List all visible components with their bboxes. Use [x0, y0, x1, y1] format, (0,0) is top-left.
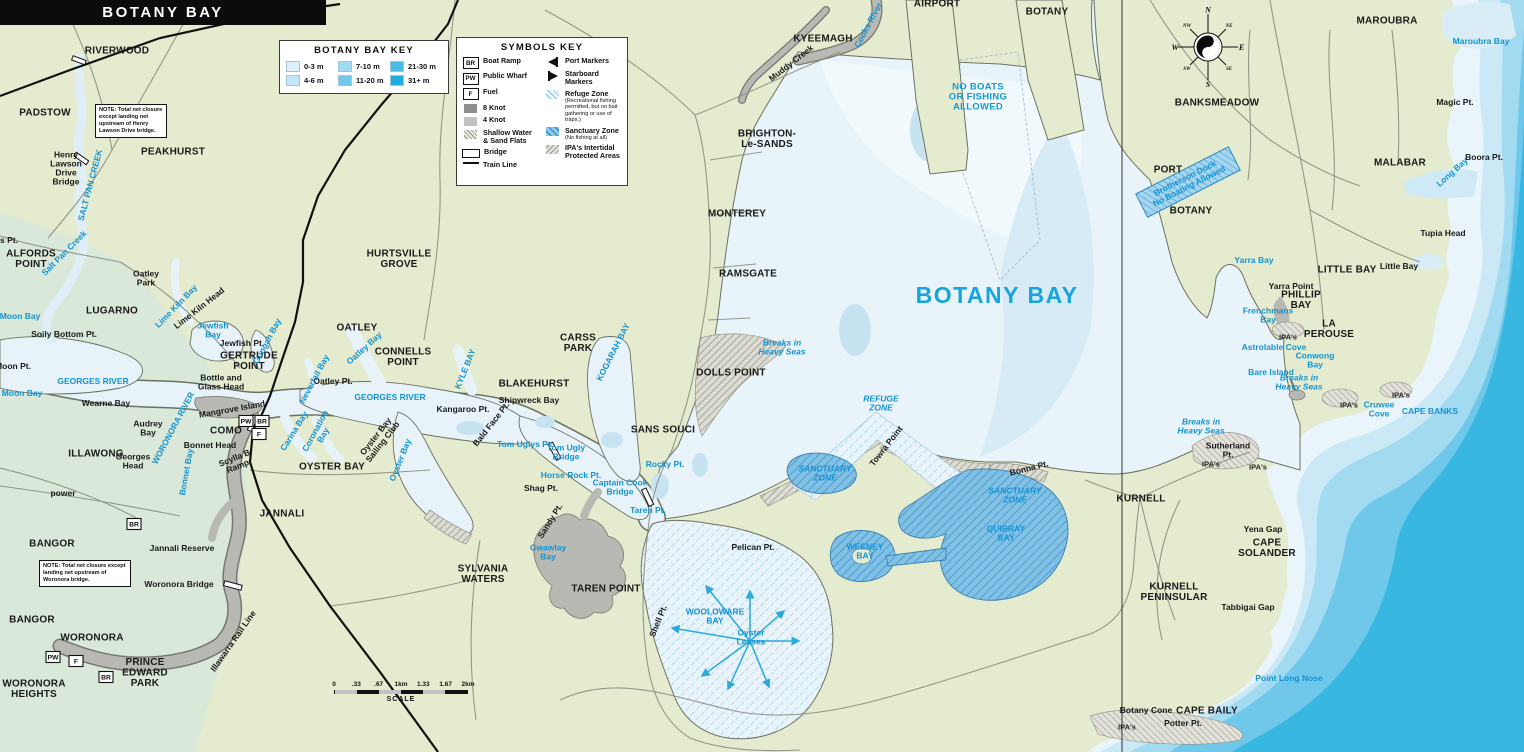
map-label: Taren Pt. — [630, 505, 666, 515]
map-label: BRIGHTON-Le-SANDS — [738, 128, 796, 150]
map-canvas: RIVERWOODPADSTOWPEAKHURSTHURTSVILLEGROVE… — [0, 0, 1524, 752]
scale-segment — [423, 690, 445, 694]
scale-tick: .67 — [374, 681, 383, 688]
map-label: BOTANY — [1026, 7, 1069, 18]
scale-tick-labels: 0.33.671km1.331.672km — [334, 681, 468, 690]
facility-marker-br: BR — [99, 672, 113, 683]
map-label: LUGARNO — [86, 306, 138, 317]
f-box-icon: F — [463, 88, 479, 100]
map-label: AIRPORT — [914, 0, 960, 10]
symbols-key-entry: 8 Knot — [462, 104, 540, 114]
map-label: Point Long Nose — [1255, 673, 1323, 683]
map-label: Breaks inHeavy Seas — [1177, 417, 1225, 436]
refuge-zone-hatch-icon — [546, 90, 559, 99]
map-label: Potter Pt. — [1164, 718, 1202, 728]
symbols-key-label: Public Wharf — [483, 72, 527, 80]
scale-bar: 0.33.671km1.331.672km SCALE — [334, 681, 468, 703]
facility-marker-f: F — [252, 429, 266, 440]
compass-n: N — [1204, 6, 1212, 15]
map-label: CARSSPARK — [560, 332, 596, 354]
map-label: BOTANY — [1170, 206, 1213, 217]
map-label: IPA's — [1202, 460, 1220, 469]
map-label: Shipwreck Bay — [499, 395, 560, 405]
svg-text:F: F — [257, 432, 261, 439]
svg-text:BR: BR — [257, 419, 267, 426]
map-label: TAREN POINT — [571, 584, 640, 595]
symbols-key-label: Refuge Zone — [565, 90, 622, 98]
map-label: Kangaroo Pt. — [437, 404, 490, 414]
map-label: OATLEY — [336, 323, 377, 334]
symbols-key-entry: Shallow Water & Sand Flats — [462, 129, 540, 145]
depth-key-entry: 31+ m — [390, 73, 442, 87]
scale-segment — [445, 690, 467, 694]
map-label: power — [50, 488, 76, 498]
map-label: COMO — [210, 426, 242, 437]
depth-label: 31+ m — [408, 76, 429, 85]
compass-se: SE — [1226, 67, 1233, 72]
net-closure-note-woronora: NOTE: Total net closure except landing n… — [39, 560, 131, 587]
compass-rose-icon: N S E W NW NE SW SE — [1172, 6, 1244, 88]
depth-swatch — [286, 61, 300, 72]
scale-caption: SCALE — [334, 696, 468, 703]
symbols-key-entry: Bridge — [462, 148, 540, 158]
symbols-key-left-column: BRBoat RampPWPublic WharfFFuel8 Knot4 Kn… — [462, 55, 540, 171]
map-label: Wearne Bay — [82, 398, 131, 408]
net-closure-note-salt-pan: NOTE: Total net closure except landing n… — [95, 104, 167, 138]
compass-nw: NW — [1182, 24, 1192, 29]
symbols-key-label: Train Line — [483, 161, 517, 169]
map-label: Boora Pt. — [1465, 152, 1503, 162]
svg-text:PW: PW — [241, 419, 253, 426]
scale-segment — [401, 690, 423, 694]
depth-swatch — [338, 75, 352, 86]
depth-label: 4-6 m — [304, 76, 324, 85]
scale-tick: 1.67 — [439, 681, 452, 688]
map-label: NO BOATSOR FISHINGALLOWED — [949, 81, 1007, 112]
map-label: s Pt. — [0, 235, 18, 245]
depth-label: 21-30 m — [408, 62, 436, 71]
map-label: WORONORAHEIGHTS — [2, 678, 65, 700]
shallow-water-hatch-icon — [464, 130, 477, 139]
svg-text:PW: PW — [48, 655, 60, 662]
map-label: IPA's — [1249, 463, 1267, 472]
map-label: Yena Gap — [1244, 524, 1283, 534]
map-label: IPA's — [1279, 333, 1297, 342]
depth-label: 11-20 m — [356, 76, 384, 85]
svg-text:F: F — [74, 659, 78, 666]
depth-key-entry: 11-20 m — [338, 73, 390, 87]
symbols-key-subtext: (No fishing at all) — [565, 135, 619, 141]
scale-segments — [334, 690, 468, 694]
map-label: Breaks inHeavy Seas — [1275, 373, 1323, 392]
compass-s: S — [1206, 80, 1211, 88]
map-label: KYEEMAGH — [793, 34, 852, 45]
symbols-key-entry: FFuel — [462, 88, 540, 101]
map-label: SANS SOUCI — [631, 425, 695, 436]
depth-label: 0-3 m — [304, 62, 324, 71]
symbols-key-entry: BRBoat Ramp — [462, 57, 540, 70]
depth-key-entry: 21-30 m — [390, 59, 442, 73]
svg-text:BR: BR — [129, 522, 139, 529]
map-label: Botany Cone — [1120, 705, 1173, 715]
scale-segment — [357, 690, 379, 694]
symbols-key-entry: Starboard Markers — [544, 70, 622, 86]
scale-segment — [379, 690, 401, 694]
depth-swatch — [286, 75, 300, 86]
map-label: BOTANY BAY — [916, 282, 1079, 308]
symbols-key-label: 8 Knot — [483, 104, 505, 112]
map-label: BANKSMEADOW — [1175, 98, 1260, 109]
scale-tick: .33 — [352, 681, 361, 688]
depth-key-legend: BOTANY BAY KEY 0-3 m4-6 m7-10 m11-20 m21… — [279, 40, 449, 94]
symbols-key-right-column: Port MarkersStarboard MarkersRefuge Zone… — [544, 55, 622, 171]
map-label: Woronora Bridge — [144, 579, 214, 589]
symbols-key-label: Sanctuary Zone — [565, 127, 619, 135]
map-label: Rocky Pt. — [646, 459, 685, 469]
map-label: MONTEREY — [708, 209, 766, 220]
scale-tick: 2km — [461, 681, 474, 688]
depth-swatch — [390, 61, 404, 72]
map-label: Little Bay — [1380, 261, 1419, 271]
symbols-key-label: 4 Knot — [483, 116, 505, 124]
compass-sw: SW — [1183, 67, 1191, 72]
symbols-key-entry: 4 Knot — [462, 116, 540, 126]
symbols-key-label: Fuel — [483, 88, 498, 96]
symbols-key-entry: Train Line — [462, 161, 540, 169]
map-label: Magic Pt. — [1436, 97, 1473, 107]
sanctuary-zone-hatch-icon — [546, 127, 559, 136]
map-label: MALABAR — [1374, 158, 1427, 169]
map-label: IPA's — [1392, 391, 1410, 400]
scale-tick: 0 — [332, 681, 336, 688]
depth-key-title: BOTANY BAY KEY — [280, 45, 448, 56]
compass-e: E — [1238, 43, 1244, 52]
map-label: BANGOR — [29, 539, 75, 550]
map-label: KURNELL — [1116, 494, 1165, 505]
map-label: OYSTER BAY — [299, 462, 365, 473]
map-label: Moon Bay — [0, 311, 41, 321]
depth-label: 7-10 m — [356, 62, 380, 71]
compass-w: W — [1172, 43, 1179, 52]
br-box-icon: BR — [463, 57, 479, 69]
symbols-key-entry: IPA's Intertidal Protected Areas — [544, 144, 622, 160]
map-label: RAMSGATE — [719, 269, 777, 280]
symbols-key-entry: Refuge Zone(Recreational fishing permitt… — [544, 90, 622, 124]
ipa-hatch-icon — [546, 145, 559, 154]
map-label: DOLLS POINT — [696, 368, 765, 379]
depth-key-entry: 7-10 m — [338, 59, 390, 73]
depth-key-entries: 0-3 m4-6 m7-10 m11-20 m21-30 m31+ m — [280, 58, 448, 88]
compass-ne: NE — [1225, 24, 1234, 29]
symbols-key-entry: PWPublic Wharf — [462, 72, 540, 85]
map-label: PADSTOW — [19, 108, 71, 119]
map-label: Yarra Point — [1269, 281, 1314, 291]
port-marker-icon — [548, 57, 558, 67]
map-label: KURNELLPENINSULAR — [1140, 581, 1208, 603]
map-label: Pelican Pt. — [732, 542, 775, 552]
map-label: WORONORA — [60, 633, 123, 644]
bridge-icon — [462, 149, 480, 158]
train-line-icon — [463, 162, 479, 165]
knot-swatch-icon — [464, 104, 477, 113]
symbols-key-label: Port Markers — [565, 57, 609, 65]
map-label: Jannali Reserve — [150, 543, 215, 553]
map-label: HenryLawsonDriveBridge — [50, 150, 82, 187]
map-label: CAPE BAILY — [1176, 706, 1238, 717]
map-label: Tabbigai Gap — [1221, 602, 1274, 612]
depth-swatch — [338, 61, 352, 72]
pw-box-icon: PW — [463, 73, 479, 85]
map-label: IPA's — [1340, 401, 1358, 410]
depth-swatch — [390, 75, 404, 86]
botany-bay-map-page: RIVERWOODPADSTOWPEAKHURSTHURTSVILLEGROVE… — [0, 0, 1524, 752]
map-label: Maroubra Bay — [1453, 36, 1510, 46]
map-label: SYLVANIAWATERS — [458, 563, 509, 585]
map-title: BOTANY BAY — [102, 4, 223, 21]
map-label: MAROUBRA — [1356, 16, 1417, 27]
map-label: Soily Bottom Pt. — [31, 329, 97, 339]
map-label: GEORGES RIVER — [57, 376, 128, 386]
symbols-key-entry: Port Markers — [544, 57, 622, 68]
svg-text:BR: BR — [101, 675, 111, 682]
depth-key-entry: 4-6 m — [286, 73, 338, 87]
symbols-key-label: Starboard Markers — [565, 70, 622, 86]
map-label: RIVERWOOD — [85, 46, 149, 57]
map-label: LITTLE BAY — [1318, 265, 1377, 276]
facility-marker-f: F — [69, 656, 83, 667]
scale-tick: 1.33 — [417, 681, 430, 688]
map-label: PORT — [1154, 165, 1183, 176]
facility-marker-pw: PW — [239, 416, 253, 427]
map-label: Bonnet Head — [184, 440, 236, 450]
symbols-key-label: Bridge — [484, 148, 507, 156]
map-label: Yarra Bay — [1234, 255, 1273, 265]
starboard-marker-icon — [548, 71, 558, 81]
depth-key-entry: 0-3 m — [286, 59, 338, 73]
symbols-key-subtext: (Recreational fishing permitted, but no … — [565, 98, 622, 124]
facility-marker-br: BR — [255, 416, 269, 427]
map-label: Tupia Head — [1420, 228, 1465, 238]
map-label: Moon Pt. — [0, 361, 31, 371]
map-title-banner: BOTANY BAY — [0, 0, 326, 25]
symbols-key-label: Boat Ramp — [483, 57, 521, 65]
symbols-key-label: IPA's Intertidal Protected Areas — [565, 144, 620, 160]
map-label: CAPE BANKS — [1402, 406, 1459, 416]
map-label: Bottle andGlass Head — [198, 373, 244, 392]
map-label: Moon Bay — [2, 388, 43, 398]
scale-tick: 1km — [394, 681, 407, 688]
facility-marker-br: BR — [127, 519, 141, 530]
map-label: Tom Uglys Pt. — [497, 439, 553, 449]
map-label: Shag Pt. — [524, 483, 558, 493]
symbols-key-title: SYMBOLS KEY — [457, 42, 627, 53]
map-label: BLAKEHURST — [499, 379, 570, 390]
map-label: GEORGES RIVER — [354, 392, 425, 402]
map-label: JANNALI — [260, 509, 305, 520]
symbols-key-legend: SYMBOLS KEY BRBoat RampPWPublic WharfFFu… — [456, 37, 628, 186]
scale-segment — [335, 690, 357, 694]
facility-marker-pw: PW — [46, 652, 60, 663]
symbols-key-entry: Sanctuary Zone(No fishing at all) — [544, 127, 622, 141]
knot-swatch-icon — [464, 117, 477, 126]
map-label: Breaks inHeavy Seas — [758, 338, 806, 357]
map-label: BANGOR — [9, 615, 55, 626]
symbols-key-label: Shallow Water & Sand Flats — [483, 129, 532, 145]
map-label: IPA's — [1118, 723, 1136, 732]
map-label: PEAKHURST — [141, 147, 205, 158]
map-label: OysterLeases — [737, 628, 766, 647]
